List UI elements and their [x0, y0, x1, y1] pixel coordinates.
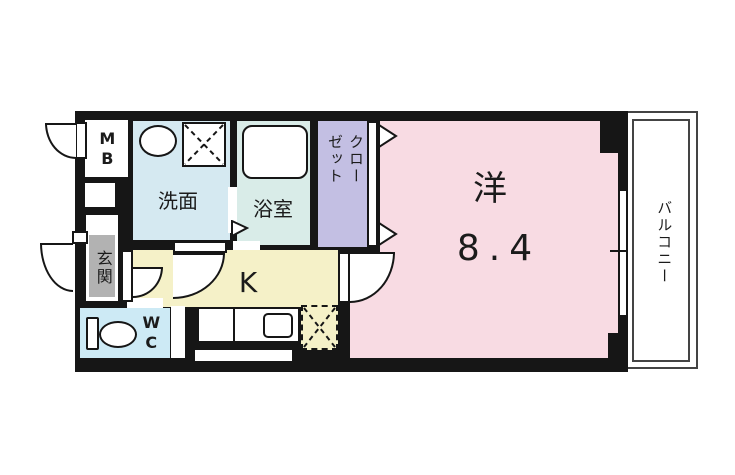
label-wc: WC: [137, 310, 165, 356]
refrigerator-space: [301, 305, 338, 350]
hall-kitchen-door-leaf: [121, 250, 133, 302]
label-balcony: バルコニー: [650, 182, 678, 302]
hall-strip: [171, 306, 185, 358]
label-kitchen: K: [226, 265, 270, 301]
wall-corner-bottom-right: [608, 333, 630, 359]
label-meter-box: MB: [93, 126, 121, 172]
label-bathroom: 浴室: [237, 197, 309, 221]
washroom-door-leaf: [173, 241, 227, 253]
wall-niche: [85, 183, 115, 207]
label-western-room: 洋: [450, 168, 530, 212]
kitchen-window: [195, 350, 292, 361]
wall-corner-top-right: [600, 111, 628, 153]
meter-box-door-leaf: [75, 122, 87, 159]
washing-machine-pan: [182, 122, 226, 167]
balcony-window: [618, 191, 628, 315]
counter-divider: [233, 309, 235, 341]
washbasin-icon: [139, 125, 177, 157]
kitchen-counter: [197, 307, 300, 343]
toilet-tank-icon: [86, 317, 99, 350]
entrance-door-swing: [40, 243, 73, 292]
closet-door: [367, 121, 378, 247]
closet-door-arrow-top: [378, 124, 398, 148]
label-entrance: 玄関: [93, 240, 113, 296]
meter-box-door-swing: [45, 123, 76, 159]
closet-door-arrow-bottom: [378, 222, 398, 246]
kitchen-sink-icon: [263, 313, 293, 338]
toilet-bowl-icon: [99, 321, 137, 348]
label-closet: クローゼット: [324, 134, 366, 194]
western-room-door-leaf: [338, 252, 350, 303]
floor-plan: 洋 8.4 K 洗面 浴室 クローゼット 玄関 WC MB バルコニー: [0, 0, 735, 475]
label-washroom: 洗面: [138, 189, 218, 213]
label-western-size: 8.4: [435, 226, 554, 272]
entrance-door-leaf: [72, 231, 88, 244]
wall-gap-bathroom: [233, 241, 260, 250]
bathtub-icon: [242, 125, 308, 179]
bathroom-door-arrow: [231, 220, 249, 237]
